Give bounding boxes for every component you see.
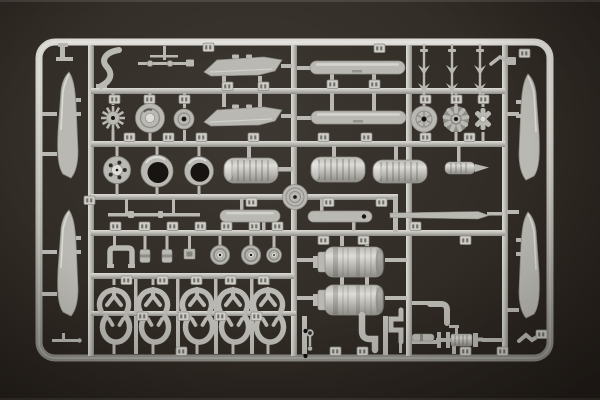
photo-artifacts	[0, 0, 600, 400]
vignette-overlay	[0, 0, 600, 400]
sprue-photo	[0, 0, 600, 400]
photo-background	[0, 0, 600, 400]
